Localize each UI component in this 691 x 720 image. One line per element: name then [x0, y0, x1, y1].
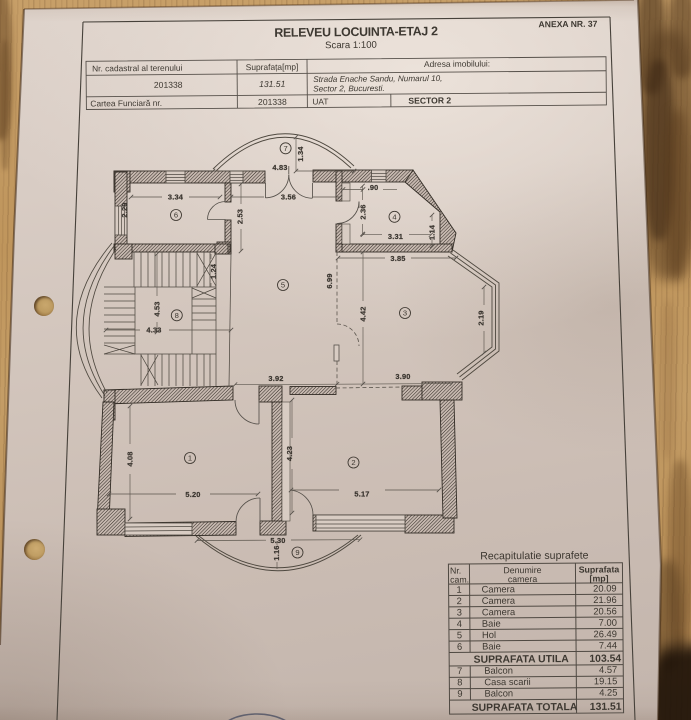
svg-text:20.56: 20.56 [593, 605, 617, 616]
svg-text:201338: 201338 [154, 80, 183, 90]
svg-text:4.53: 4.53 [153, 301, 162, 316]
svg-text:3.31: 3.31 [388, 232, 403, 241]
svg-text:Camera: Camera [482, 595, 516, 606]
svg-text:Camera: Camera [482, 606, 516, 617]
svg-text:5.30: 5.30 [270, 536, 285, 545]
svg-text:Scara 1:100: Scara 1:100 [325, 40, 377, 52]
svg-text:1.14: 1.14 [427, 224, 436, 240]
svg-text:ANEXA NR. 37: ANEXA NR. 37 [538, 19, 597, 30]
svg-text:19.15: 19.15 [594, 675, 618, 686]
svg-text:5: 5 [457, 629, 462, 640]
svg-text:4.23: 4.23 [285, 446, 294, 461]
svg-text:UAT: UAT [312, 96, 328, 106]
svg-text:4.25: 4.25 [599, 687, 617, 698]
svg-text:6: 6 [457, 641, 462, 652]
svg-text:7: 7 [457, 665, 462, 676]
svg-text:26.49: 26.49 [593, 628, 617, 639]
svg-text:SUPRAFATA UTILA: SUPRAFATA UTILA [474, 654, 570, 666]
svg-text:7.44: 7.44 [599, 639, 617, 650]
svg-text:5.20: 5.20 [185, 490, 200, 499]
svg-text:9: 9 [457, 688, 462, 699]
svg-text:Sector 2, Bucuresti.: Sector 2, Bucuresti. [313, 84, 385, 94]
svg-text:3.34: 3.34 [168, 192, 184, 201]
svg-text:2.29: 2.29 [120, 202, 129, 217]
svg-text:9: 9 [295, 548, 299, 557]
svg-text:4: 4 [457, 618, 462, 629]
svg-text:5.17: 5.17 [354, 489, 369, 498]
svg-text:4.57: 4.57 [599, 664, 617, 675]
svg-text:Baie: Baie [482, 640, 501, 651]
svg-text:SECTOR 2: SECTOR 2 [408, 95, 451, 105]
svg-text:Camera: Camera [482, 583, 516, 594]
svg-text:8: 8 [175, 311, 179, 320]
svg-text:4.42: 4.42 [358, 306, 367, 321]
svg-text:131.51: 131.51 [590, 702, 622, 713]
svg-text:2.53: 2.53 [236, 209, 245, 224]
svg-text:3: 3 [457, 606, 462, 617]
svg-text:3.90: 3.90 [395, 372, 410, 381]
svg-text:4.33: 4.33 [146, 326, 161, 335]
svg-text:3.56: 3.56 [281, 193, 296, 202]
svg-text:Adresa imobilului:: Adresa imobilului: [424, 58, 490, 69]
svg-text:6.99: 6.99 [325, 273, 334, 288]
svg-text:3.85: 3.85 [390, 254, 405, 263]
svg-text:4: 4 [392, 212, 396, 221]
svg-text:4.08: 4.08 [125, 451, 134, 466]
svg-text:.90: .90 [368, 183, 379, 192]
svg-text:Suprafața[mp]: Suprafața[mp] [246, 62, 299, 72]
svg-text:7: 7 [283, 144, 287, 153]
svg-text:2: 2 [457, 595, 462, 606]
svg-text:5: 5 [281, 281, 285, 290]
svg-text:20.09: 20.09 [593, 582, 617, 593]
svg-text:RELEVEU LOCUINTA-ETAJ 2: RELEVEU LOCUINTA-ETAJ 2 [274, 24, 438, 40]
svg-text:7.00: 7.00 [599, 617, 617, 628]
svg-text:2.19: 2.19 [477, 310, 486, 325]
svg-text:1: 1 [456, 584, 461, 595]
svg-text:131.51: 131.51 [259, 79, 286, 89]
svg-text:Recapitulatie suprafete: Recapitulatie suprafete [480, 550, 589, 563]
svg-text:Balcon: Balcon [484, 687, 513, 698]
svg-text:SUPRAFATA TOTALA: SUPRAFATA TOTALA [472, 702, 578, 714]
svg-text:3.92: 3.92 [268, 374, 283, 383]
svg-text:1.16: 1.16 [272, 545, 281, 560]
svg-text:1.24: 1.24 [209, 263, 218, 279]
svg-text:3: 3 [403, 309, 407, 318]
svg-text:2: 2 [351, 458, 355, 467]
svg-text:Casa scarii: Casa scarii [484, 676, 530, 687]
svg-text:201338: 201338 [258, 97, 287, 107]
svg-text:Nr. cadastral al terenului: Nr. cadastral al terenului [92, 63, 183, 74]
svg-text:Hol: Hol [482, 629, 496, 640]
svg-text:Balcon: Balcon [484, 665, 513, 676]
svg-text:8: 8 [457, 676, 462, 687]
svg-text:1: 1 [188, 454, 192, 463]
svg-text:103.54: 103.54 [589, 654, 621, 665]
svg-text:Baie: Baie [482, 618, 501, 629]
svg-text:21.96: 21.96 [593, 594, 617, 605]
svg-text:6: 6 [174, 211, 178, 220]
svg-text:Cartea Funciară nr.: Cartea Funciară nr. [90, 98, 162, 109]
svg-text:1.34: 1.34 [296, 146, 305, 162]
svg-text:2.36: 2.36 [358, 204, 367, 219]
svg-text:4.83: 4.83 [272, 163, 287, 172]
svg-text:Strada Enache Sandu, Numarul 1: Strada Enache Sandu, Numarul 10, [313, 74, 442, 84]
